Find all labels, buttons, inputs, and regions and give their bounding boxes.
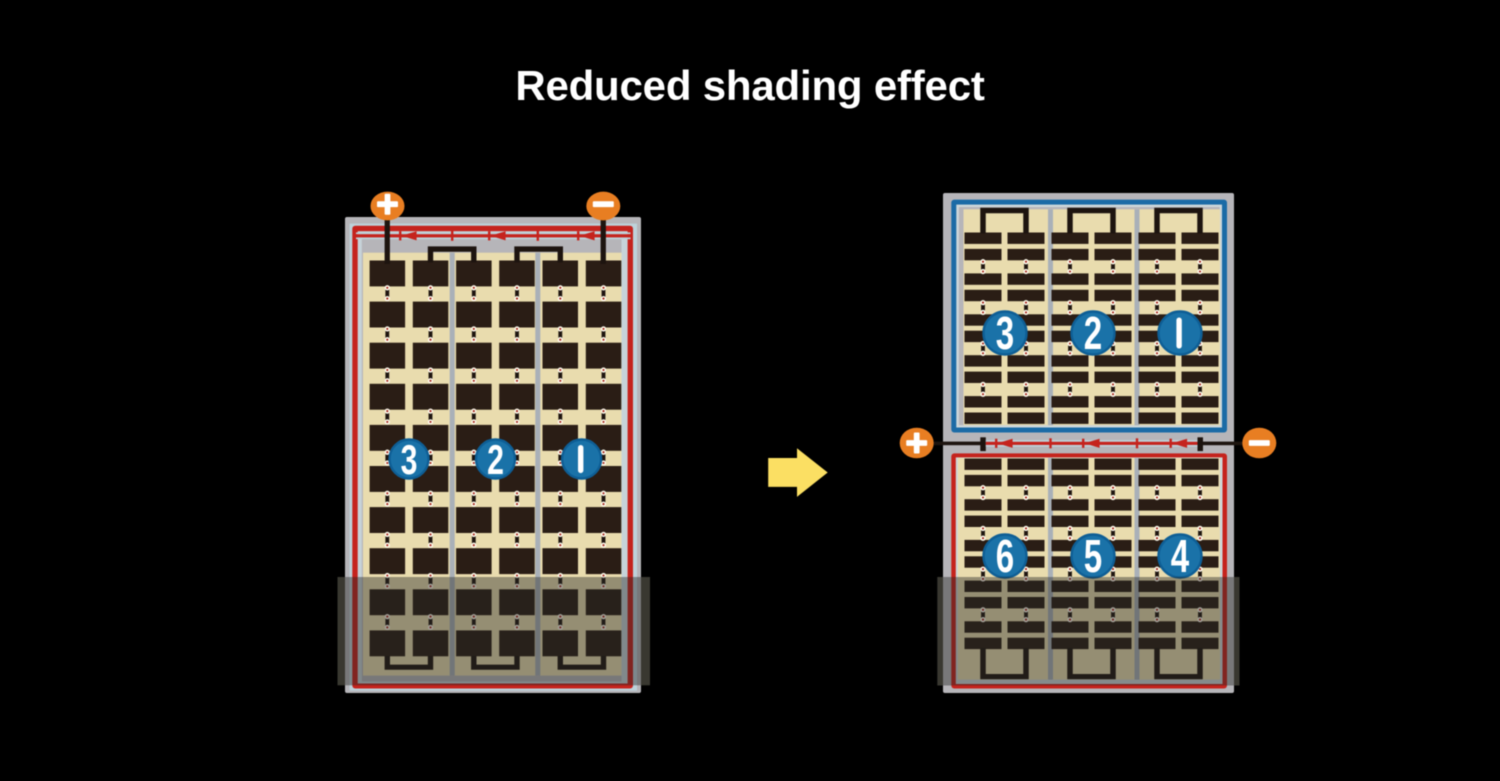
svg-text:6: 6	[996, 532, 1014, 582]
svg-text:2: 2	[487, 436, 504, 483]
svg-text:4: 4	[1171, 532, 1190, 582]
svg-text:3: 3	[401, 436, 418, 483]
svg-text:5: 5	[1084, 532, 1102, 582]
svg-text:3: 3	[996, 309, 1014, 359]
svg-text:2: 2	[1084, 309, 1102, 359]
